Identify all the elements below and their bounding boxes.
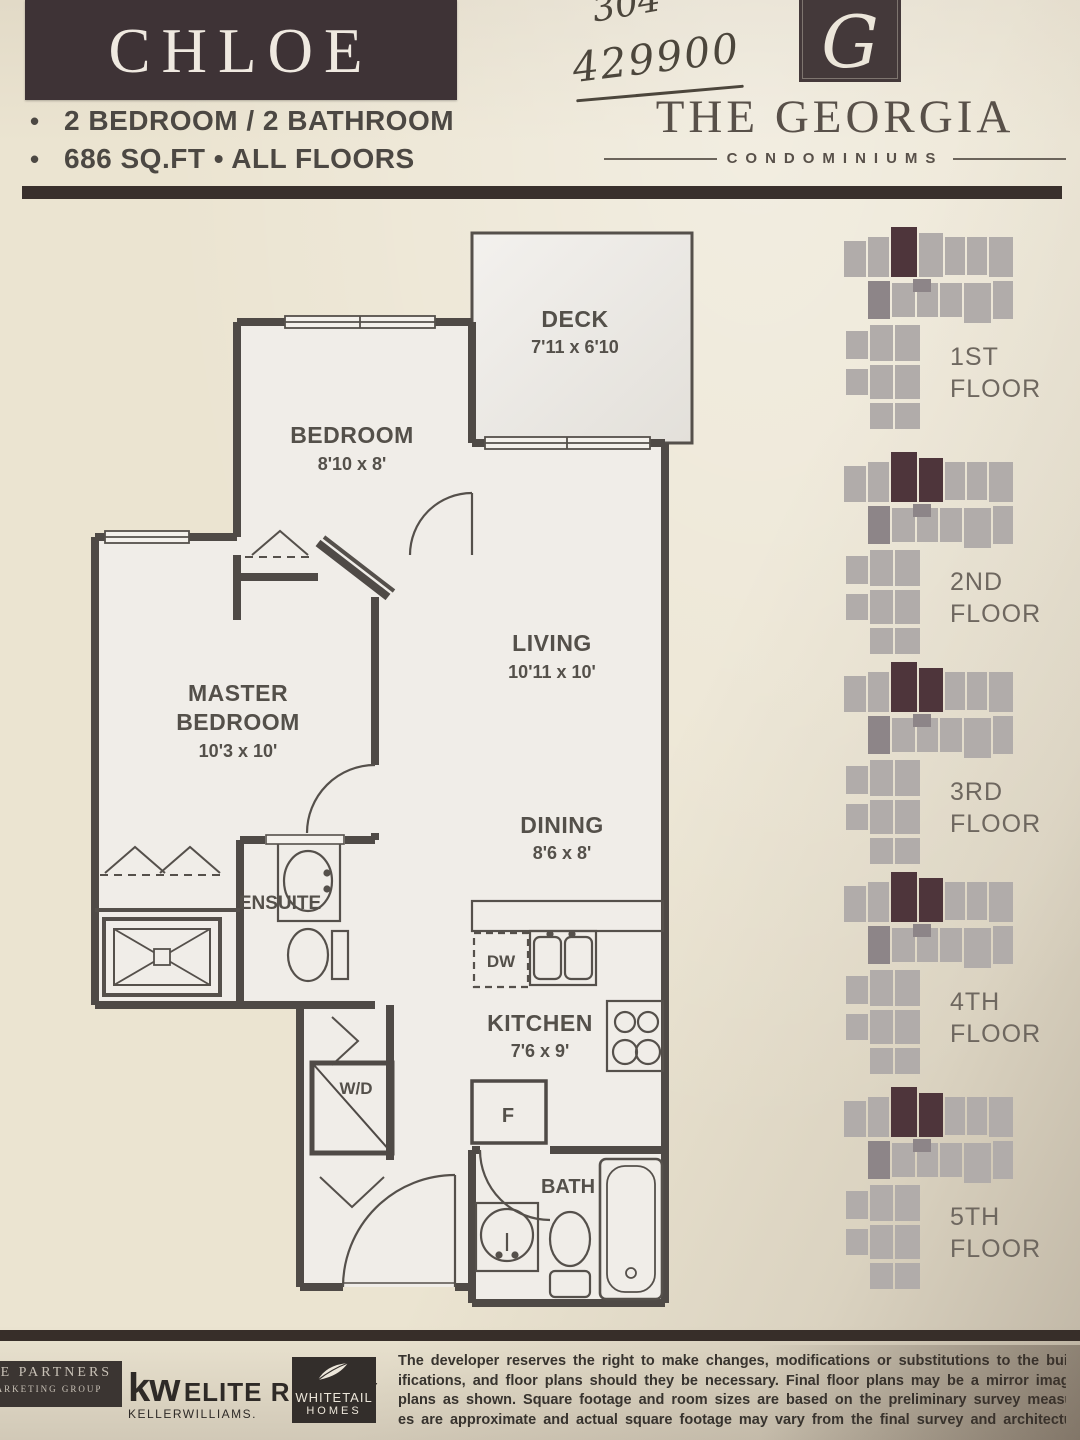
- floor-label-1-line1: 1ST: [950, 343, 999, 371]
- partners-logo-line2: MARKETING GROUP: [0, 1384, 122, 1394]
- tagline-line-right: [953, 158, 1066, 160]
- room-dims-bedroom: 8'10 x 8': [318, 454, 387, 474]
- window-deck-door: [485, 437, 650, 449]
- plan-title: CHLOE: [25, 0, 457, 102]
- room-dims-kitchen: 7'6 x 9': [511, 1041, 570, 1061]
- floor-label-1-line2: FLOOR: [950, 375, 1041, 403]
- floor-label-5-line1: 5TH: [950, 1203, 1000, 1231]
- room-label-ensuite: ENSUITE: [239, 893, 321, 914]
- room-label-living: LIVING: [512, 630, 592, 656]
- footer-divider: [0, 1330, 1080, 1341]
- window-master: [105, 531, 189, 543]
- feature-item: •686 SQ.FT • ALL FLOORS: [30, 140, 454, 178]
- feature-text: 686 SQ.FT • ALL FLOORS: [64, 143, 415, 174]
- ensuite-door: [266, 835, 344, 844]
- flyer-page: CHLOE •2 BEDROOM / 2 BATHROOM •686 SQ.FT…: [0, 0, 1080, 1440]
- handwritten-note: 304: [589, 0, 664, 31]
- label-washer-dryer: W/D: [339, 1079, 372, 1098]
- plan-title-box: CHLOE: [25, 0, 457, 100]
- room-dims-master: 10'3 x 10': [199, 741, 278, 761]
- room-dims-living: 10'11 x 10': [508, 662, 596, 682]
- bullet-icon: •: [30, 102, 64, 140]
- room-label-deck: DECK: [541, 306, 608, 332]
- whitetail-logo: WHITETAIL HOMES: [292, 1357, 376, 1423]
- floor-label-4-line1: 4TH: [950, 988, 1000, 1016]
- feather-icon: [314, 1361, 354, 1383]
- georgia-monogram-box: G: [799, 0, 901, 82]
- floor-plates: 1ST FLOOR 2ND FLOOR 3RD FLOOR 4TH FLOOR …: [828, 222, 1080, 1322]
- whitetail-line2: HOMES: [292, 1405, 376, 1417]
- floor-label-3-line1: 3RD: [950, 778, 1003, 806]
- bullet-icon: •: [30, 140, 64, 178]
- feature-item: •2 BEDROOM / 2 BATHROOM: [30, 102, 454, 140]
- brand-name: THE GEORGIA: [600, 90, 1070, 144]
- label-dishwasher: DW: [487, 952, 516, 971]
- floor-label-2-line2: FLOOR: [950, 600, 1041, 628]
- room-label-master-1: MASTER: [188, 680, 288, 706]
- partners-logo-line1: THE PARTNERS: [0, 1365, 122, 1381]
- room-dims-dining: 8'6 x 8': [533, 843, 592, 863]
- floor-label-3-line2: FLOOR: [950, 810, 1041, 838]
- room-label-bath: BATH: [541, 1176, 595, 1198]
- room-label-bedroom: BEDROOM: [290, 422, 414, 448]
- kw-mark: kw: [128, 1366, 179, 1410]
- room-label-kitchen: KITCHEN: [487, 1010, 593, 1036]
- partners-logo: THE PARTNERS MARKETING GROUP: [0, 1361, 122, 1407]
- brand-tagline: CONDOMINIUMS: [717, 150, 954, 167]
- whitetail-line1: WHITETAIL: [292, 1390, 376, 1405]
- feature-list: •2 BEDROOM / 2 BATHROOM •686 SQ.FT • ALL…: [30, 102, 454, 178]
- room-dims-deck: 7'11 x 6'10: [531, 337, 619, 357]
- floor-label-4-line2: FLOOR: [950, 1020, 1041, 1048]
- floor-label-5-line2: FLOOR: [950, 1235, 1041, 1263]
- georgia-monogram-icon: G: [799, 0, 901, 88]
- header-divider: [22, 186, 1062, 199]
- floor-label-2-line1: 2ND: [950, 568, 1003, 596]
- floor-plan: DECK 7'11 x 6'10 BEDROOM 8'10 x 8' LIVIN…: [80, 225, 700, 1320]
- room-label-master-2: BEDROOM: [176, 709, 300, 735]
- photo-shadow-overlay: [760, 1345, 1080, 1440]
- window-bedroom: [285, 316, 435, 328]
- room-label-dining: DINING: [520, 812, 604, 838]
- highlight-unit: [891, 227, 917, 277]
- feature-text: 2 BEDROOM / 2 BATHROOM: [64, 105, 454, 136]
- brand-tagline-row: CONDOMINIUMS: [604, 150, 1066, 167]
- handwritten-price: 429900: [570, 24, 743, 92]
- tagline-line-left: [604, 158, 717, 160]
- label-fridge: F: [502, 1105, 514, 1127]
